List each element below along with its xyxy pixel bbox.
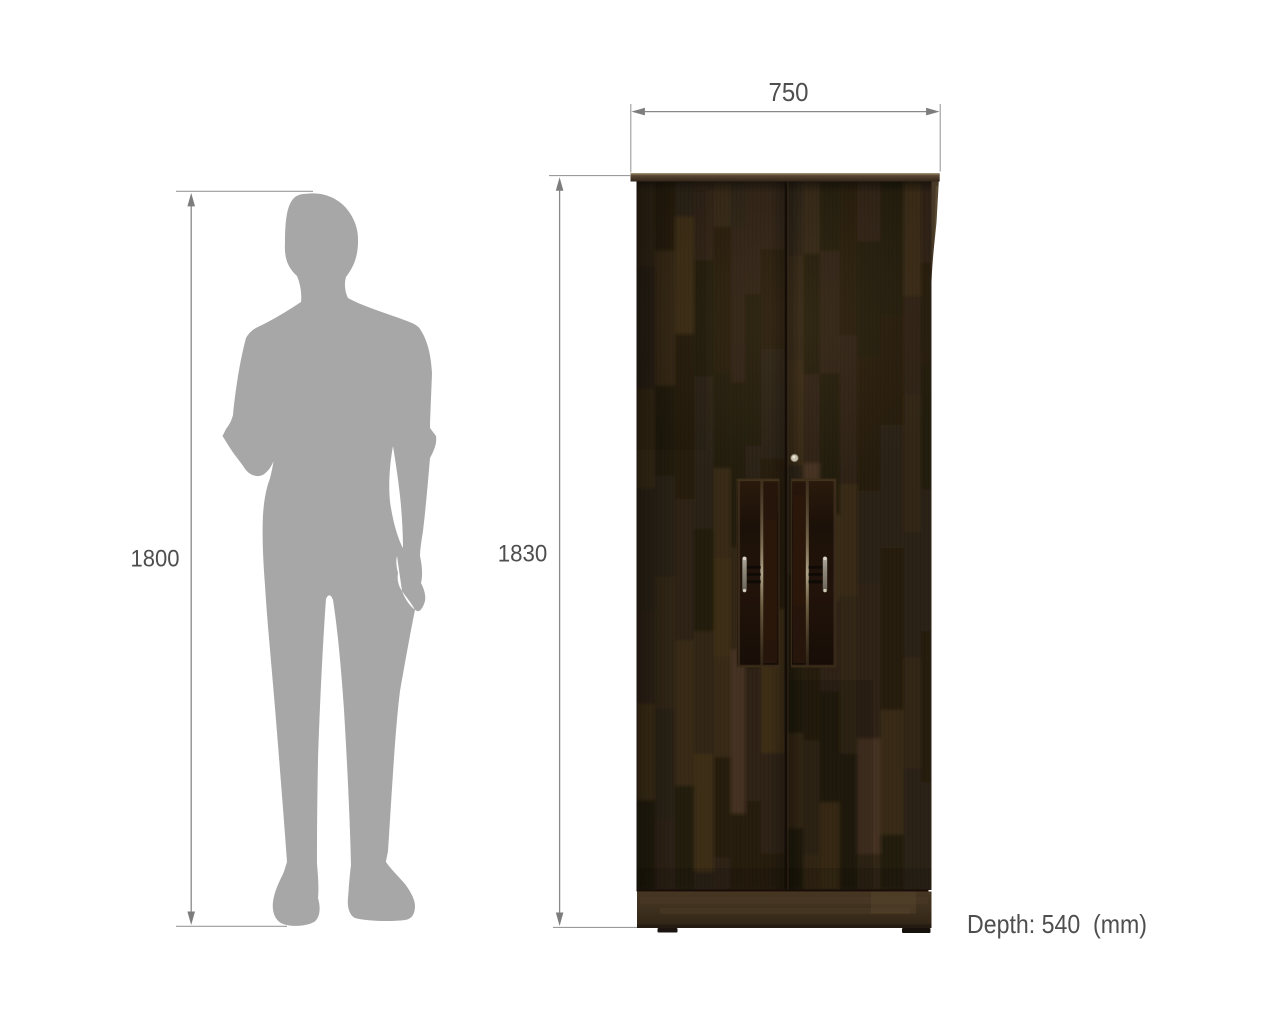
svg-text:Depth: 540 (mm): Depth: 540 (mm) — [967, 909, 1147, 939]
svg-text:1800: 1800 — [131, 546, 180, 573]
svg-text:750: 750 — [769, 77, 809, 107]
svg-text:1830: 1830 — [498, 541, 548, 568]
